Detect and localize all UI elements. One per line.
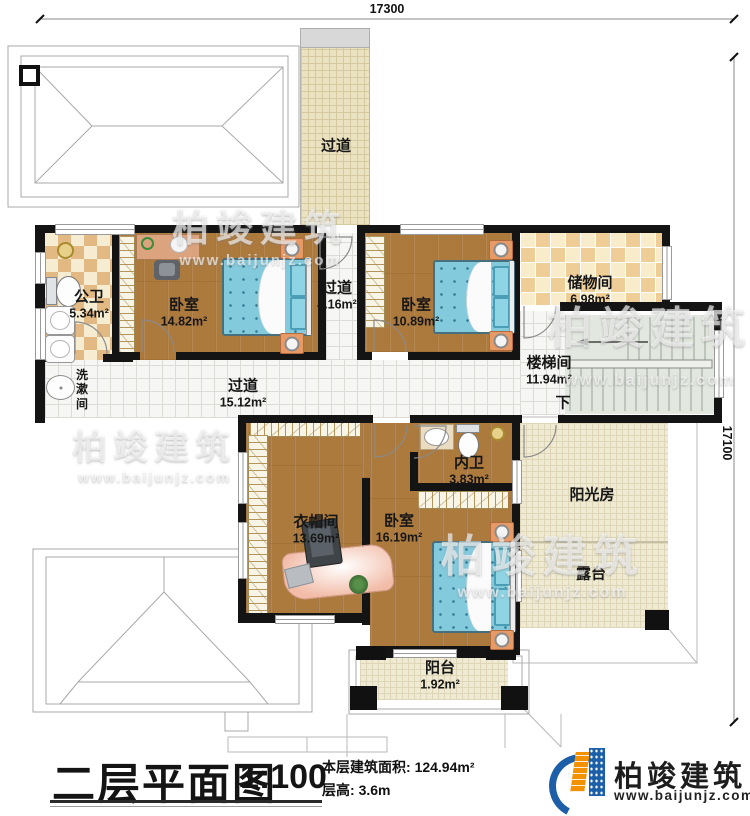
title-underline: [50, 800, 322, 803]
room-label-hall-mid: 过道4.16m²: [317, 281, 357, 312]
floor-plan-canvas: 17300 17100: [0, 0, 750, 816]
dimension-right: 17100: [720, 413, 734, 473]
room-label-public-bath: 公卫5.34m²: [69, 290, 109, 321]
dimension-top: 17300: [352, 2, 422, 16]
brand-website: www.baijunjz.com: [614, 788, 750, 803]
door-and-stair-layer: [0, 0, 750, 816]
door-arc: [320, 237, 352, 269]
stair-down-label: 下: [555, 396, 570, 413]
brand-logo-building-blue-icon: [589, 748, 605, 796]
floor-area-label: 本层建筑面积:: [322, 759, 411, 775]
room-label-bedroom3: 卧室16.19m²: [376, 514, 423, 545]
floor-area-row: 本层建筑面积: 124.94m²: [322, 760, 475, 774]
room-label-hall-main: 过道15.12m²: [220, 379, 267, 410]
floor-area-value: 124.94m²: [415, 759, 475, 775]
floor-height-label: 层高:: [322, 782, 355, 798]
floor-height-row: 层高: 3.6m: [322, 783, 475, 797]
door-arc: [524, 306, 556, 338]
plan-info: 本层建筑面积: 124.94m² 层高: 3.6m: [322, 760, 475, 806]
room-label-bedroom2: 卧室10.89m²: [393, 298, 440, 329]
room-label-stairwell: 楼梯间11.94m²: [526, 356, 572, 387]
room-label-balcony: 阳台1.92m²: [420, 661, 460, 692]
room-label-cloakroom: 衣帽间13.69m²: [293, 515, 340, 546]
plan-scale: 1:100: [240, 758, 327, 797]
door-arc: [75, 322, 107, 354]
room-label-storage: 储物间6.98m²: [567, 276, 612, 307]
floor-height-value: 3.6m: [359, 782, 391, 798]
door-arc: [375, 425, 407, 457]
room-label-hall-top: 过道: [321, 139, 351, 156]
room-label-inner-bath: 内卫3.83m²: [449, 456, 489, 487]
door-arc: [524, 425, 556, 457]
door-arcs: [75, 237, 556, 458]
room-label-terrace: 露台: [576, 567, 606, 584]
stairs: [568, 317, 712, 411]
room-label-bedroom1: 卧室14.82m²: [161, 298, 208, 329]
door-arc: [414, 426, 446, 458]
room-label-washroom: 洗漱间: [74, 368, 90, 411]
room-label-sunroom: 阳光房: [569, 488, 614, 505]
title-underline-2: [50, 806, 322, 807]
